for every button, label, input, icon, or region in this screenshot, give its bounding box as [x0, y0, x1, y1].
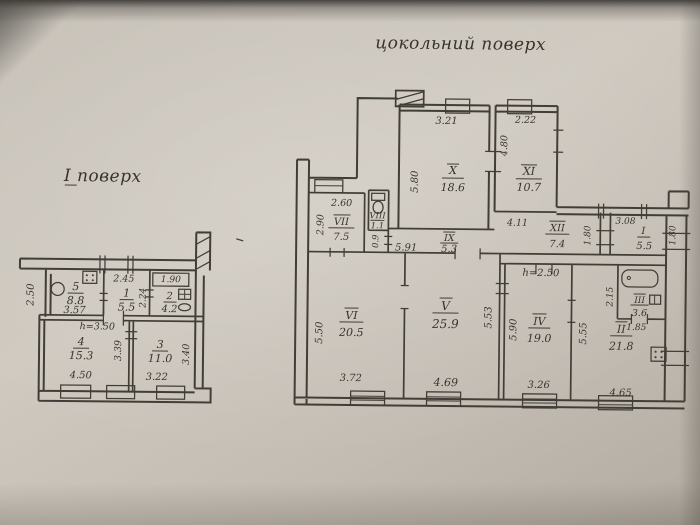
roomXII-depth: 1.80 [583, 225, 593, 245]
room4-number: 4 [77, 335, 85, 348]
roomXI-area: 10.7 [516, 181, 541, 194]
basement-walls [294, 89, 691, 410]
roomV-area: 25.9 [431, 317, 459, 331]
roomVII-width: 2.60 [330, 198, 352, 209]
room1-width: 2.45 [112, 274, 134, 285]
room5-number: 5 [72, 280, 79, 293]
floor-plan-drawing: I поверх [0, 0, 700, 525]
basin-icon [178, 304, 190, 311]
room2-width: 1.90 [161, 275, 181, 285]
corridor-length: 5.91 [395, 242, 417, 253]
roomII-number: II [616, 323, 626, 336]
roomXI-number: XI [522, 165, 536, 178]
room2-area: 4.2 [160, 304, 177, 315]
basement-title: цокольний поверх [375, 33, 546, 55]
room4-width: 4.50 [69, 370, 93, 381]
room1-depth: 2.24 [139, 287, 149, 308]
basement-plan: цокольний поверх [294, 32, 692, 410]
roomX-area: 18.6 [440, 181, 465, 194]
roomVII-depth: 2.90 [315, 214, 326, 236]
roomVII-number: VII [334, 217, 350, 228]
roomII-width: 4.65 [608, 388, 631, 399]
roomIV-width: 3.26 [528, 380, 551, 391]
roomVIII-area: 1.1 [371, 221, 385, 231]
photo-of-paper-floor-plan: I поверх [0, 0, 700, 525]
room1-number: 1 [123, 287, 130, 300]
boiler-icon [51, 282, 64, 295]
height-note: h=3.50 [80, 321, 115, 332]
roomX-width: 3.21 [435, 116, 457, 127]
roomIV-depth: 5.90 [508, 318, 519, 341]
roomIII-area: 3.6 [632, 308, 647, 319]
roomI-area: 5.5 [636, 241, 652, 252]
roomXII-number: XII [549, 223, 566, 234]
room3-number: 3 [157, 338, 164, 351]
stray-mark [236, 239, 243, 241]
roomXI-depth: 4.80 [499, 135, 510, 157]
roomX-depth: 5.80 [410, 170, 421, 193]
toilet-tank-icon [372, 193, 385, 200]
room5-depth: 2.50 [26, 283, 37, 307]
room3-area: 11.0 [148, 352, 173, 365]
room2-number: 2 [165, 291, 172, 302]
roomV-width: 4.69 [432, 376, 458, 389]
first-floor-title: I поверх [63, 166, 142, 187]
first-floor-plan: I поверх [19, 166, 213, 403]
roomIX-number: IX [443, 233, 456, 244]
roomVII-area: 7.5 [333, 232, 349, 243]
roomI-number: I [640, 226, 646, 237]
room4-depth: 3.39 [113, 340, 124, 361]
roomIII-depth: 2.15 [606, 286, 616, 307]
first-floor-walls [19, 231, 213, 403]
roomI-width: 3.08 [615, 217, 635, 227]
roomIX-area: 5.3 [441, 244, 457, 255]
room3-width: 3.22 [146, 372, 168, 383]
room1-area: 5.5 [118, 301, 136, 314]
corridor-door-width: 0.9 [371, 234, 381, 248]
roomV-number: V [441, 299, 451, 313]
roomX-number: X [448, 164, 458, 177]
roomVI-number: VI [345, 309, 358, 322]
roomVI-area: 20.5 [338, 326, 364, 339]
roomIII-width: 1.85 [626, 323, 646, 333]
room4-area: 15.3 [69, 349, 94, 362]
roomIV-number: IV [532, 315, 546, 328]
roomIV-area: 19.0 [527, 332, 552, 345]
bath-drain-icon [627, 276, 630, 279]
roomXII-width: 4.11 [506, 218, 528, 229]
roomVI-width: 3.72 [340, 373, 362, 384]
stove-icon [83, 271, 97, 283]
roomII-area: 21.8 [608, 340, 634, 353]
room5-width: 3.57 [63, 305, 86, 316]
roomII-depth: 5.55 [578, 322, 589, 344]
roomV-depth: 5.53 [483, 306, 494, 328]
roomXII-area: 7.4 [549, 239, 565, 250]
room3-depth: 3.40 [181, 344, 192, 365]
roomI-depth: 1.80 [668, 225, 678, 245]
roomVI-depth: 5.50 [314, 321, 325, 344]
roomXI-width: 2.22 [514, 115, 536, 126]
roomIV-height-note: h=2.50 [522, 268, 560, 279]
stove-icon [651, 347, 666, 361]
